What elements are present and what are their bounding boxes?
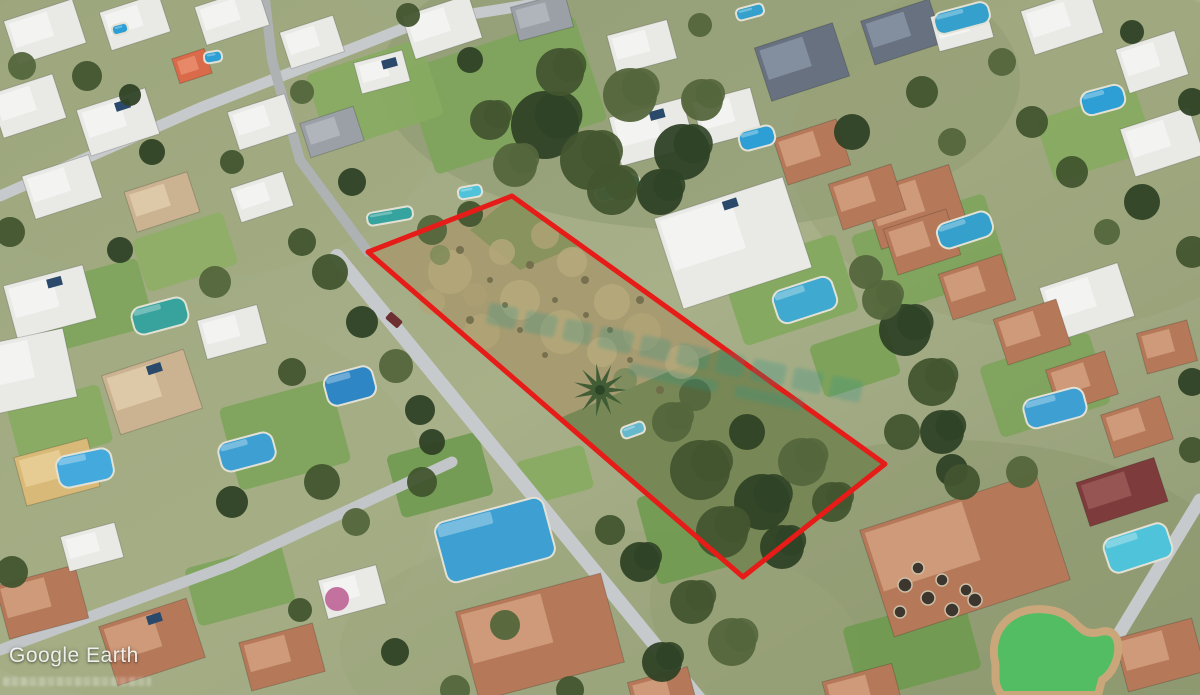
tree: [484, 100, 512, 128]
plot-bush: [636, 296, 644, 304]
plot-scrub-patch: [430, 245, 450, 265]
plot-bush: [526, 261, 534, 269]
tree: [944, 464, 980, 500]
tree: [338, 168, 366, 196]
swimming-pool: [203, 50, 223, 64]
plot-bush: [517, 327, 523, 333]
bougainvillea: [325, 587, 349, 611]
tree: [288, 598, 312, 622]
tree: [290, 80, 314, 104]
plot-scrub-patch: [557, 247, 587, 277]
tree: [884, 414, 920, 450]
tree: [691, 440, 733, 482]
tree: [508, 143, 539, 174]
tree: [938, 128, 966, 156]
pool-water: [203, 50, 223, 64]
tree: [396, 3, 420, 27]
tree: [553, 48, 587, 82]
tree: [696, 79, 725, 108]
tree: [605, 165, 640, 200]
tree: [1006, 456, 1038, 488]
tree: [725, 618, 759, 652]
tree: [1056, 156, 1088, 188]
tree: [906, 76, 938, 108]
plot-scrub-patch: [594, 284, 630, 320]
tree: [379, 349, 413, 383]
tree: [834, 114, 870, 150]
roof-ornament: [921, 591, 935, 605]
tree: [653, 169, 685, 201]
plot-bush: [456, 246, 464, 254]
roof-ornament: [912, 562, 924, 574]
tree: [729, 414, 765, 450]
plot-bush: [656, 386, 664, 394]
tree: [220, 150, 244, 174]
tree: [288, 228, 316, 256]
tree: [278, 358, 306, 386]
tree: [381, 638, 409, 666]
plot-bush: [466, 316, 474, 324]
tree: [1124, 184, 1160, 220]
plot-bush: [552, 297, 558, 303]
tree: [419, 429, 445, 455]
tree: [876, 280, 904, 308]
tree: [8, 52, 36, 80]
aerial-imagery: [0, 0, 1200, 695]
plot-bush: [627, 357, 633, 363]
tree: [1016, 106, 1048, 138]
roof-ornament: [945, 603, 959, 617]
tree: [346, 306, 378, 338]
tree: [107, 237, 133, 263]
tree: [119, 84, 141, 106]
imagery-attribution-smudge: [3, 677, 151, 686]
tree: [795, 438, 829, 472]
tree: [216, 486, 248, 518]
roof-ornament: [898, 578, 912, 592]
google-earth-viewport: Google Earth: [0, 0, 1200, 695]
tree: [685, 580, 716, 611]
tree: [199, 266, 231, 298]
tree: [312, 254, 348, 290]
tree: [935, 410, 966, 441]
tree: [490, 610, 520, 640]
google-earth-logo: Google Earth: [9, 644, 139, 668]
tree: [457, 47, 483, 73]
plot-bush: [583, 312, 589, 318]
tree: [897, 304, 933, 340]
plot-bush: [542, 352, 548, 358]
tree: [688, 13, 712, 37]
tree: [405, 395, 435, 425]
tree: [1120, 20, 1144, 44]
roof-ornament: [894, 606, 906, 618]
tree: [634, 542, 662, 570]
tree: [407, 467, 437, 497]
tree: [304, 464, 340, 500]
palm-tree-core: [595, 385, 605, 395]
roof-ornament: [960, 584, 972, 596]
plot-bush: [581, 276, 589, 284]
tree: [714, 506, 750, 542]
tree: [72, 61, 102, 91]
plot-scrub-patch: [489, 239, 515, 265]
tree: [595, 515, 625, 545]
tree: [139, 139, 165, 165]
tree: [674, 124, 713, 163]
tree: [925, 358, 959, 392]
roof-ornament: [936, 574, 948, 586]
tree: [342, 508, 370, 536]
tree: [849, 255, 883, 289]
tree: [535, 91, 583, 139]
plot-scrub-patch: [463, 283, 487, 307]
tree: [656, 642, 684, 670]
tree: [988, 48, 1016, 76]
tree: [1094, 219, 1120, 245]
tree: [622, 68, 660, 106]
plot-bush: [487, 277, 493, 283]
